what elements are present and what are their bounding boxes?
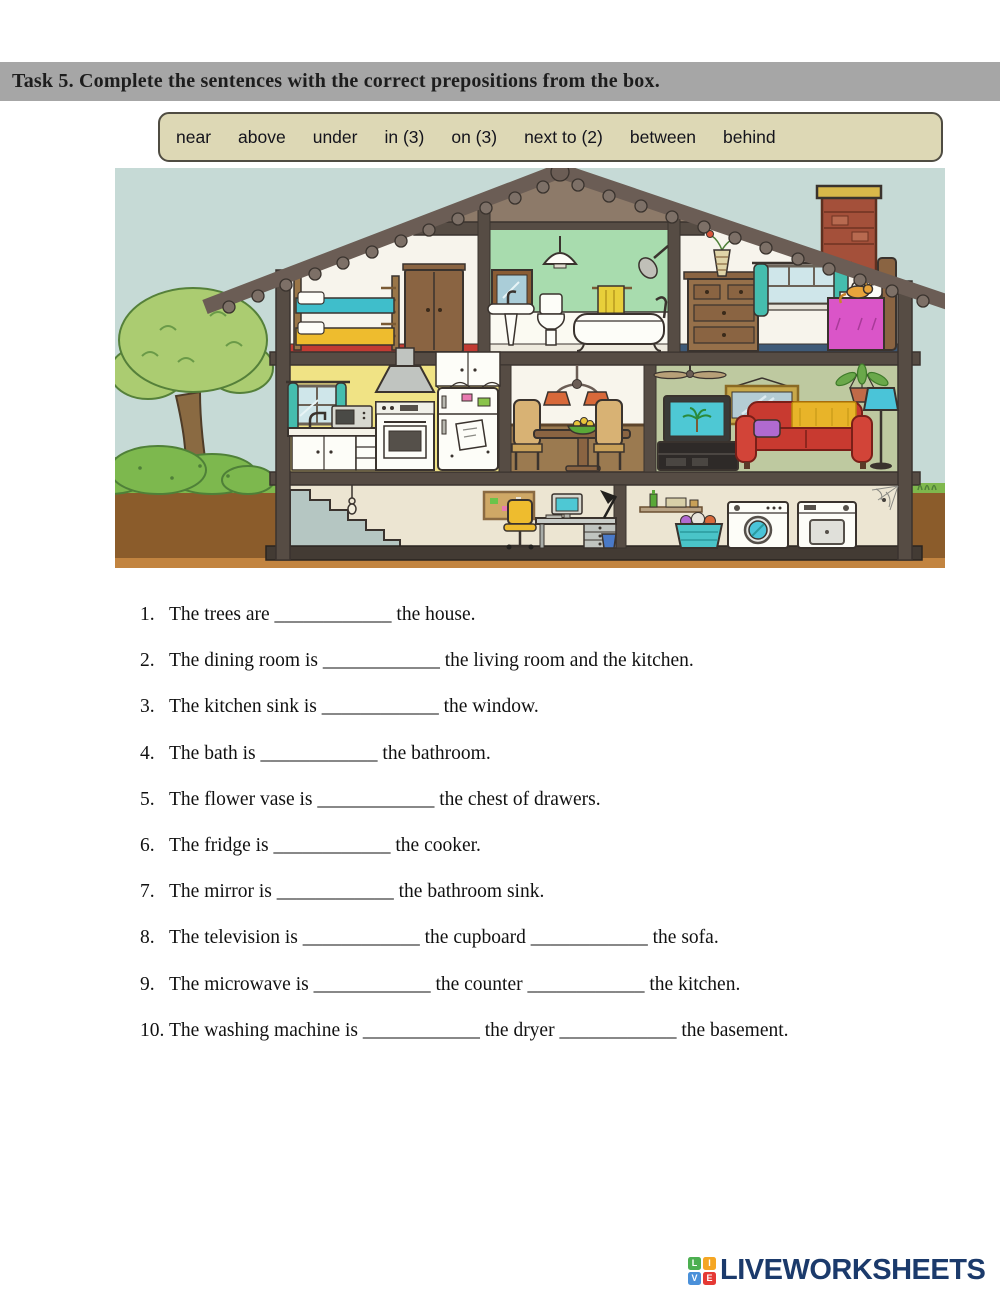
sentence-7: 7.The mirror is ____________ the bathroo… [140, 881, 960, 901]
sentence-8: 8.The television is ____________ the cup… [140, 927, 960, 947]
sentence-list: 1.The trees are ____________ the house. … [140, 604, 960, 1066]
sentence-text: The fridge is ____________ the cooker. [169, 835, 481, 856]
sentence-2: 2.The dining room is ____________ the li… [140, 650, 960, 670]
liveworksheets-logo: L I V E LIVEWORKSHEETS [688, 1254, 985, 1287]
sentence-1: 1.The trees are ____________ the house. [140, 604, 960, 624]
logo-tile-l: L [688, 1257, 701, 1270]
kitchen-cabinet-upper [436, 352, 500, 390]
sentence-text: The trees are ____________ the house. [169, 604, 476, 625]
word-in: in (3) [384, 127, 424, 148]
task-header-text: Task 5. Complete the sentences with the … [0, 70, 660, 93]
word-near: near [176, 127, 211, 148]
tv-stand [658, 442, 738, 470]
preposition-word-box: near above under in (3) on (3) next to (… [158, 112, 943, 162]
liveworksheets-logo-icon: L I V E [688, 1257, 716, 1285]
sentence-number: 3. [140, 696, 169, 718]
sentence-number: 8. [140, 927, 169, 949]
washing-machine [728, 502, 788, 548]
house-illustration [115, 168, 945, 568]
sentence-number: 10. [140, 1020, 169, 1042]
sentence-4: 4.The bath is ____________ the bathroom. [140, 743, 960, 763]
sentence-text: The washing machine is ____________ the … [169, 1020, 789, 1041]
sentence-number: 5. [140, 789, 169, 811]
logo-tile-e: E [703, 1272, 716, 1285]
sentence-text: The dining room is ____________ the livi… [169, 650, 694, 671]
task-header-bar: Task 5. Complete the sentences with the … [0, 62, 1000, 101]
sentence-5: 5.The flower vase is ____________ the ch… [140, 789, 960, 809]
logo-tile-v: V [688, 1272, 701, 1285]
word-behind: behind [723, 127, 776, 148]
word-above: above [238, 127, 286, 148]
cooker [376, 402, 434, 470]
sentence-text: The television is ____________ the cupbo… [169, 927, 719, 948]
sentence-10: 10.The washing machine is ____________ t… [140, 1020, 960, 1040]
logo-tile-i: I [703, 1257, 716, 1270]
microwave [332, 406, 372, 428]
sentence-number: 2. [140, 650, 169, 672]
sentence-number: 1. [140, 604, 169, 626]
sentence-text: The microwave is ____________ the counte… [169, 974, 740, 995]
trash-bin [602, 534, 616, 548]
television [664, 396, 730, 442]
liveworksheets-logo-text: LIVEWORKSHEETS [720, 1254, 985, 1287]
sentence-number: 6. [140, 835, 169, 857]
sentence-text: The flower vase is ____________ the ches… [169, 789, 601, 810]
sentence-text: The kitchen sink is ____________ the win… [169, 696, 539, 717]
sentence-3: 3.The kitchen sink is ____________ the w… [140, 696, 960, 716]
worksheet-page: Task 5. Complete the sentences with the … [0, 0, 1000, 1294]
fridge [438, 388, 498, 470]
sentence-number: 9. [140, 974, 169, 996]
sentence-text: The bath is ____________ the bathroom. [169, 743, 491, 764]
sentence-9: 9.The microwave is ____________ the coun… [140, 974, 960, 994]
sentence-number: 7. [140, 881, 169, 903]
wardrobe [403, 264, 465, 352]
dryer [798, 502, 856, 548]
word-on: on (3) [451, 127, 497, 148]
chest-of-drawers [684, 272, 762, 351]
word-between: between [630, 127, 696, 148]
sentence-text: The mirror is ____________ the bathroom … [169, 881, 544, 902]
word-next-to: next to (2) [524, 127, 603, 148]
sentence-6: 6.The fridge is ____________ the cooker. [140, 835, 960, 855]
word-under: under [313, 127, 358, 148]
sentence-number: 4. [140, 743, 169, 765]
